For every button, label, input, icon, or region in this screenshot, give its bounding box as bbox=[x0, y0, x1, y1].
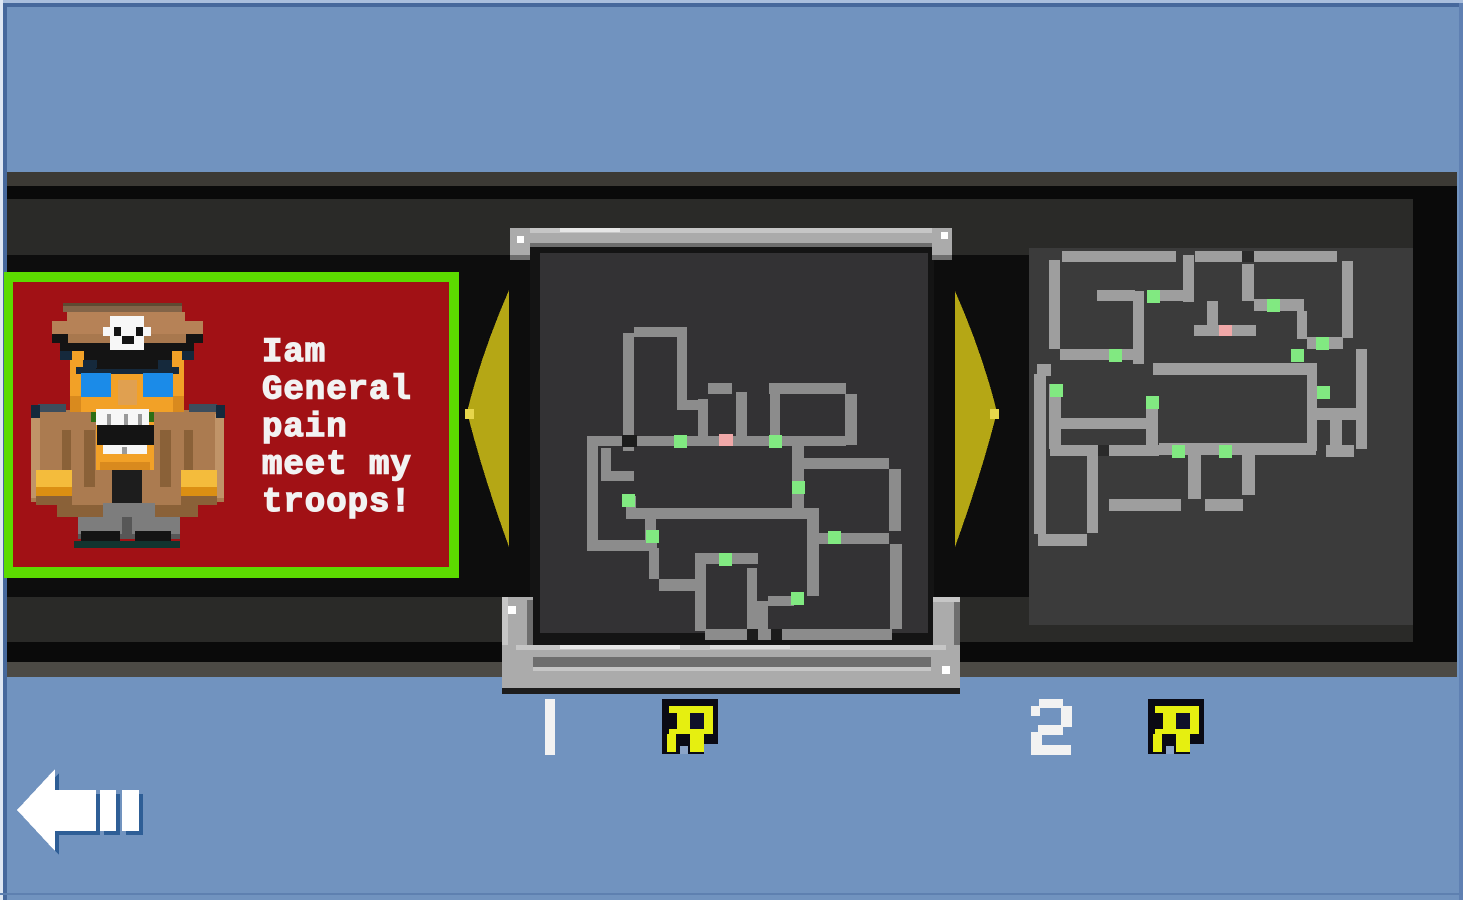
svg-text:meet my: meet my bbox=[262, 447, 412, 485]
svg-text:troops!: troops! bbox=[262, 484, 412, 522]
svg-text:Iam: Iam bbox=[262, 334, 326, 372]
svg-text:General: General bbox=[262, 372, 412, 410]
svg-text:pain: pain bbox=[262, 409, 348, 447]
